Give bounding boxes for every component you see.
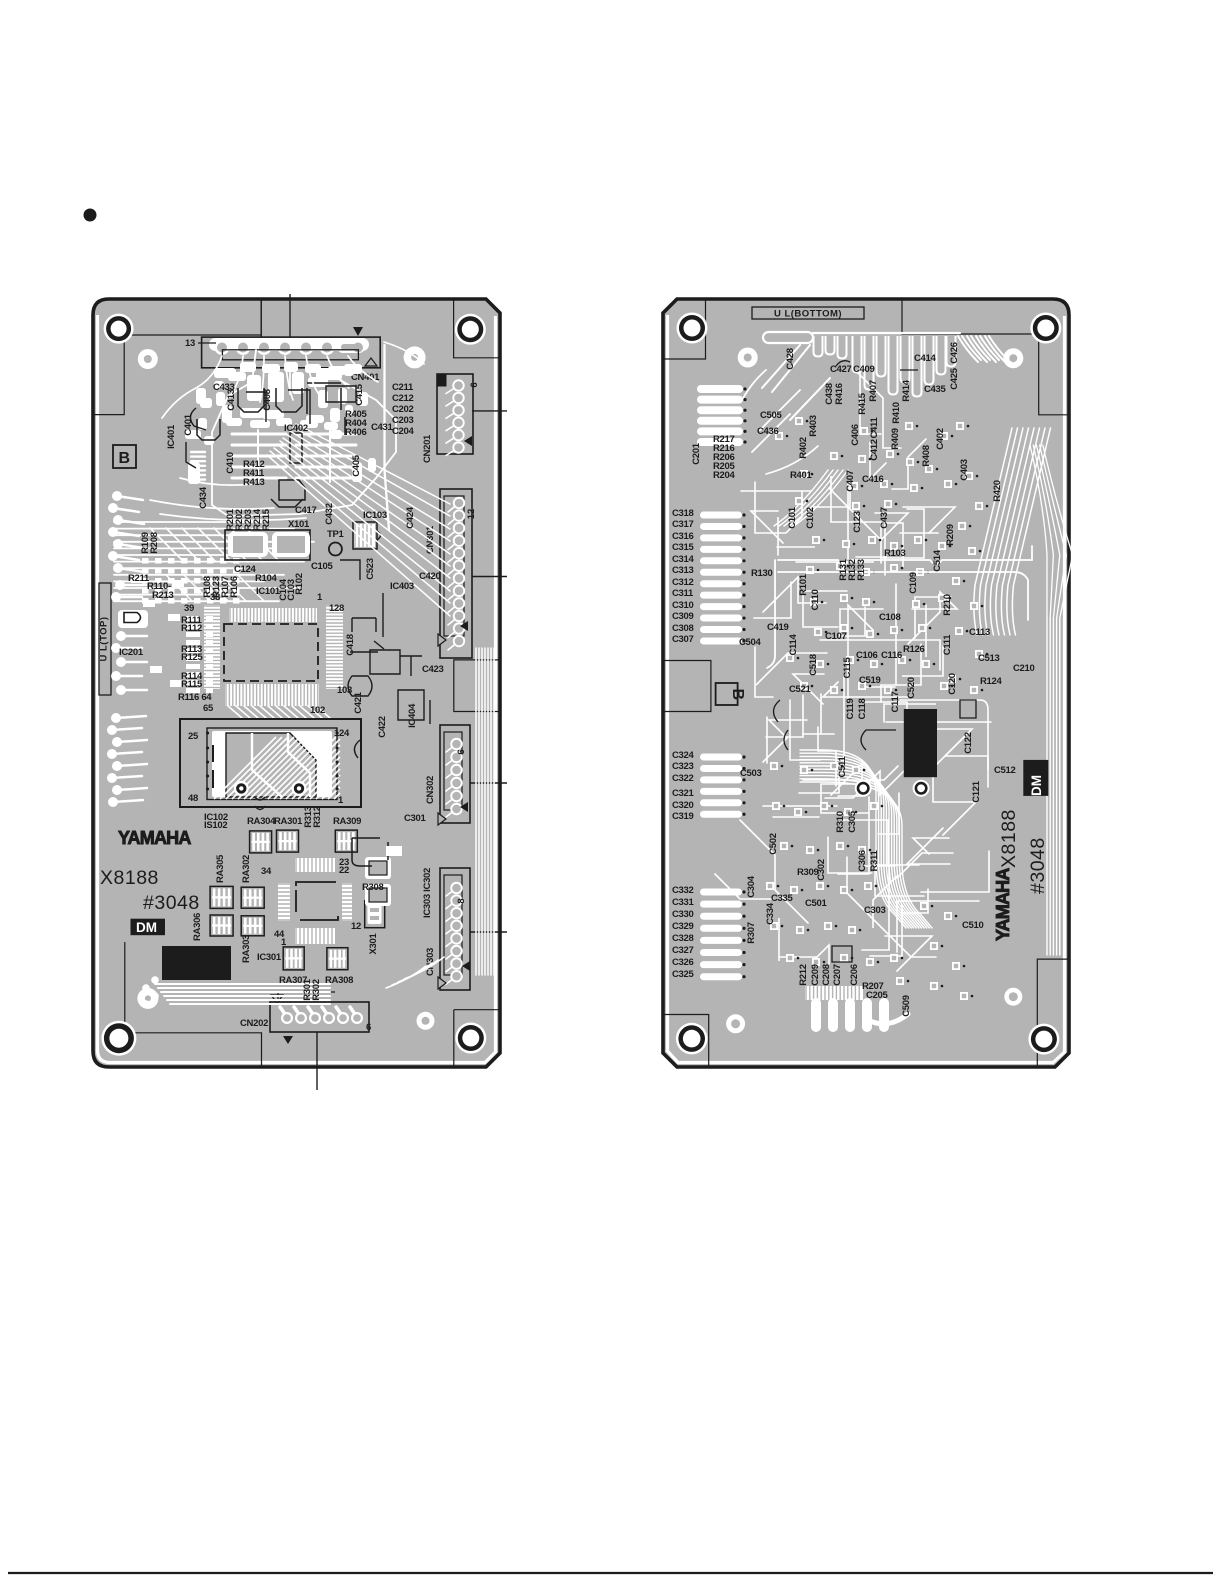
svg-text:C414: C414 — [914, 353, 937, 364]
svg-text:RA306: RA306 — [192, 913, 203, 941]
svg-text:C110: C110 — [810, 589, 821, 610]
svg-text:RA305: RA305 — [215, 854, 226, 883]
svg-text:R413: R413 — [243, 477, 265, 488]
svg-text:C418: C418 — [345, 634, 356, 656]
svg-text:C122: C122 — [963, 732, 974, 754]
svg-text:C424: C424 — [405, 506, 416, 529]
svg-text:C201: C201 — [691, 442, 702, 465]
svg-text:124: 124 — [334, 728, 350, 739]
svg-text:C321: C321 — [672, 788, 695, 799]
svg-text:C410: C410 — [225, 452, 236, 474]
svg-text:C503: C503 — [740, 768, 762, 779]
svg-text:C513: C513 — [978, 653, 1000, 664]
svg-text:C417: C417 — [295, 505, 317, 516]
svg-text:C437: C437 — [879, 507, 890, 529]
svg-text:6: 6 — [469, 382, 480, 387]
svg-text:R212: R212 — [798, 964, 809, 986]
svg-text:C416: C416 — [862, 474, 884, 485]
svg-text:C312: C312 — [672, 577, 694, 588]
svg-text:C124: C124 — [234, 564, 257, 575]
svg-text:C426: C426 — [949, 342, 960, 364]
svg-text:R213: R213 — [152, 590, 174, 601]
svg-text:C106: C106 — [856, 650, 878, 661]
svg-text:C313: C313 — [672, 565, 694, 576]
svg-text:C204: C204 — [392, 426, 415, 437]
svg-text:C205: C205 — [866, 990, 889, 1001]
svg-text:C509: C509 — [901, 995, 912, 1017]
svg-text:R106: R106 — [229, 576, 240, 598]
svg-text:R415: R415 — [857, 392, 868, 415]
svg-text:C308: C308 — [672, 623, 694, 634]
svg-text:C324: C324 — [672, 750, 695, 761]
svg-text:C413: C413 — [226, 389, 237, 411]
svg-text:R409: R409 — [890, 428, 901, 450]
svg-text:R310: R310 — [835, 811, 846, 833]
svg-text:C420: C420 — [419, 571, 441, 582]
svg-text:R312: R312 — [312, 806, 323, 828]
svg-text:C519: C519 — [859, 675, 881, 686]
svg-text:13: 13 — [185, 338, 195, 349]
svg-text:C412: C412 — [869, 439, 880, 461]
svg-text:103: 103 — [337, 685, 352, 696]
svg-text:C207: C207 — [832, 964, 843, 986]
svg-text:C425: C425 — [949, 367, 960, 390]
svg-text:R125: R125 — [181, 652, 204, 663]
svg-text:25: 25 — [188, 731, 199, 742]
svg-text:RA304: RA304 — [247, 816, 276, 827]
svg-text:C305: C305 — [847, 810, 858, 833]
svg-text:RA309: RA309 — [333, 816, 361, 827]
svg-text:R414: R414 — [901, 379, 912, 402]
svg-text:R124: R124 — [980, 676, 1003, 687]
svg-text:R104: R104 — [255, 573, 278, 584]
svg-text:C427: C427 — [830, 364, 852, 375]
svg-text:IC303 IC302: IC303 IC302 — [422, 868, 433, 918]
svg-text:R403: R403 — [808, 415, 819, 437]
svg-text:IC403: IC403 — [390, 581, 414, 592]
svg-text:C432: C432 — [324, 503, 335, 525]
svg-text:C210: C210 — [1013, 663, 1035, 674]
svg-text:R208: R208 — [149, 532, 160, 554]
svg-text:C320: C320 — [672, 800, 694, 811]
svg-text:48: 48 — [188, 793, 198, 804]
svg-text:YAMAHA: YAMAHA — [993, 868, 1013, 941]
svg-text:C435: C435 — [924, 384, 947, 395]
svg-text:12: 12 — [351, 921, 361, 932]
svg-text:C202: C202 — [392, 404, 414, 415]
svg-text:C431: C431 — [371, 422, 394, 433]
svg-text:IC103: IC103 — [363, 510, 387, 521]
svg-text:DM: DM — [136, 920, 157, 935]
svg-text:C116: C116 — [881, 650, 902, 661]
svg-text:C318: C318 — [672, 508, 694, 519]
svg-text:R115: R115 — [181, 679, 203, 690]
svg-text:R307: R307 — [746, 922, 757, 944]
svg-text:C307: C307 — [672, 634, 694, 645]
svg-text:X101: X101 — [288, 519, 310, 530]
svg-text:C411: C411 — [869, 416, 880, 438]
svg-text:C334: C334 — [765, 902, 776, 925]
svg-text:R416: R416 — [834, 383, 845, 405]
svg-text:C302: C302 — [816, 859, 827, 881]
svg-text:C520: C520 — [906, 677, 917, 699]
svg-text:C115: C115 — [842, 656, 853, 678]
svg-text:C101: C101 — [787, 506, 798, 529]
svg-text:U L(BOTTOM): U L(BOTTOM) — [774, 309, 842, 320]
svg-text:R130: R130 — [751, 568, 773, 579]
svg-text:C203: C203 — [392, 415, 414, 426]
svg-text:C409: C409 — [853, 364, 875, 375]
svg-text:R407: R407 — [868, 380, 879, 402]
svg-text:C428: C428 — [785, 348, 796, 370]
svg-text:C323: C323 — [672, 761, 694, 772]
svg-text:R101: R101 — [798, 573, 809, 596]
svg-text:C434: C434 — [198, 486, 209, 509]
svg-text:C502: C502 — [768, 833, 779, 855]
svg-text:6: 6 — [366, 1022, 371, 1033]
svg-text:C415: C415 — [354, 383, 365, 406]
svg-text:C211: C211 — [392, 382, 414, 393]
svg-text:IC404: IC404 — [407, 703, 418, 728]
svg-text:B: B — [119, 450, 131, 467]
svg-text:C309: C309 — [672, 611, 694, 622]
svg-text:IC402: IC402 — [284, 423, 308, 434]
svg-text:C316: C316 — [672, 531, 694, 542]
svg-text:C326: C326 — [672, 957, 694, 968]
svg-text:C322: C322 — [672, 773, 694, 784]
svg-text:R311: R311 — [869, 849, 880, 871]
svg-text:C401: C401 — [183, 413, 194, 436]
svg-text:CN202: CN202 — [240, 1018, 268, 1029]
svg-text:65: 65 — [203, 703, 214, 714]
svg-text:C208: C208 — [821, 964, 832, 986]
svg-text:C107: C107 — [825, 631, 847, 642]
svg-text:C403: C403 — [959, 459, 970, 481]
svg-text:C102: C102 — [805, 507, 816, 529]
svg-text:C212: C212 — [392, 393, 414, 404]
svg-text:IS102: IS102 — [204, 820, 227, 831]
svg-text:U L(TOP): U L(TOP) — [99, 617, 110, 662]
svg-text:RA308: RA308 — [325, 975, 353, 986]
svg-text:R112: R112 — [181, 623, 202, 634]
svg-text:R420: R420 — [992, 480, 1003, 502]
svg-text:C209: C209 — [810, 964, 821, 986]
svg-text:C114: C114 — [788, 633, 799, 655]
svg-text:12: 12 — [466, 509, 477, 520]
svg-text:C510: C510 — [962, 920, 984, 931]
svg-text:C518: C518 — [808, 654, 819, 676]
svg-text:RA301: RA301 — [274, 816, 303, 827]
svg-text:B: B — [729, 689, 746, 701]
svg-text:R133: R133 — [856, 559, 867, 581]
svg-text:C422: C422 — [377, 716, 388, 738]
svg-text:C407: C407 — [845, 470, 856, 492]
svg-text:C335: C335 — [771, 893, 794, 904]
svg-text:C423: C423 — [422, 664, 444, 675]
svg-text:C330: C330 — [672, 909, 694, 920]
svg-text:C113: C113 — [969, 627, 990, 638]
svg-text:C405: C405 — [351, 454, 362, 477]
svg-text:C421: C421 — [353, 691, 364, 714]
svg-text:TP1: TP1 — [327, 529, 345, 540]
svg-text:C306: C306 — [857, 850, 868, 872]
svg-text:C120: C120 — [947, 673, 958, 695]
svg-text:R210: R210 — [942, 594, 953, 616]
svg-text:C408: C408 — [262, 389, 273, 411]
svg-text:C105: C105 — [311, 561, 334, 572]
svg-text:#3048: #3048 — [1027, 837, 1049, 894]
svg-text:C521: C521 — [789, 684, 812, 695]
svg-text:R410: R410 — [891, 402, 902, 424]
svg-text:C328: C328 — [672, 933, 694, 944]
svg-text:C310: C310 — [672, 600, 694, 611]
svg-text:X8188: X8188 — [100, 867, 159, 889]
svg-text:C117: C117 — [890, 691, 901, 712]
svg-text:R204: R204 — [713, 470, 736, 481]
svg-text:R126: R126 — [903, 644, 925, 655]
svg-text:C402: C402 — [935, 428, 946, 450]
svg-text:R116 64: R116 64 — [178, 692, 212, 703]
svg-text:R308: R308 — [362, 882, 384, 893]
svg-text:C118: C118 — [857, 698, 868, 719]
svg-text:C311: C311 — [672, 588, 694, 599]
svg-text:39: 39 — [184, 603, 194, 614]
svg-text:C119: C119 — [845, 698, 856, 719]
svg-text:6: 6 — [456, 749, 467, 754]
svg-text:128: 128 — [329, 603, 344, 614]
svg-text:C304: C304 — [746, 875, 757, 898]
svg-text:R215: R215 — [261, 508, 272, 531]
svg-text:C206: C206 — [849, 964, 860, 986]
svg-text:RA302: RA302 — [241, 855, 252, 883]
svg-text:22: 22 — [339, 865, 349, 876]
svg-text:C314: C314 — [672, 554, 695, 565]
svg-text:C504: C504 — [739, 637, 762, 648]
svg-text:C514: C514 — [932, 549, 943, 572]
svg-text:34: 34 — [261, 866, 272, 877]
svg-text:C512: C512 — [994, 765, 1016, 776]
svg-text:C121: C121 — [971, 780, 982, 803]
svg-text:C315: C315 — [672, 542, 695, 553]
svg-text:R408: R408 — [921, 445, 932, 467]
svg-text:R102: R102 — [294, 573, 305, 595]
svg-text:C511: C511 — [837, 755, 848, 777]
svg-text:DM: DM — [1029, 775, 1044, 796]
svg-text:C325: C325 — [672, 969, 695, 980]
svg-text:IC401: IC401 — [166, 424, 177, 449]
svg-text:8: 8 — [456, 898, 467, 903]
svg-text:IC201: IC201 — [119, 647, 144, 658]
svg-text:C406: C406 — [850, 424, 861, 446]
svg-text:C109: C109 — [908, 572, 919, 594]
svg-text:R406: R406 — [345, 427, 367, 438]
svg-text:R302: R302 — [311, 979, 322, 1001]
svg-text:C108: C108 — [879, 612, 901, 623]
svg-text:C111: C111 — [942, 634, 953, 655]
svg-text:C327: C327 — [672, 945, 694, 956]
svg-text:C505: C505 — [760, 410, 783, 421]
svg-text:C332: C332 — [672, 885, 694, 896]
svg-text:#3048: #3048 — [143, 892, 200, 914]
svg-text:R401: R401 — [790, 470, 813, 481]
svg-text:R103: R103 — [884, 548, 906, 559]
svg-text:CN302: CN302 — [425, 776, 436, 804]
svg-text:C436: C436 — [757, 426, 779, 437]
svg-text:RA303: RA303 — [241, 935, 252, 963]
svg-text:C301: C301 — [404, 813, 427, 824]
svg-text:C329: C329 — [672, 921, 694, 932]
svg-text:IC301: IC301 — [257, 952, 282, 963]
svg-text:102: 102 — [310, 705, 325, 716]
svg-text:X301: X301 — [368, 932, 379, 954]
svg-text:C123: C123 — [852, 511, 863, 533]
svg-text:C317: C317 — [672, 519, 694, 530]
svg-text:X8188: X8188 — [998, 809, 1020, 868]
svg-text:R209: R209 — [945, 524, 956, 546]
svg-text:CN201: CN201 — [422, 434, 433, 463]
svg-text:YAMAHA: YAMAHA — [118, 828, 191, 848]
svg-text:C331: C331 — [672, 897, 695, 908]
svg-text:R402: R402 — [798, 437, 809, 459]
svg-text:C523: C523 — [365, 558, 376, 580]
svg-text:C319: C319 — [672, 811, 694, 822]
svg-text:C501: C501 — [805, 898, 828, 909]
svg-text:C419: C419 — [767, 622, 789, 633]
svg-text:C303: C303 — [864, 905, 886, 916]
